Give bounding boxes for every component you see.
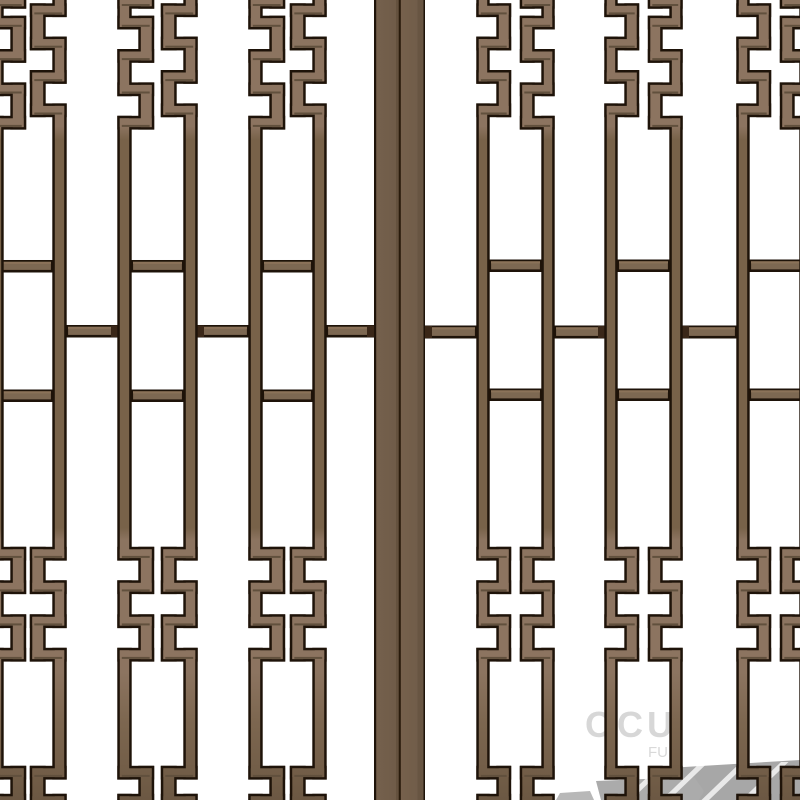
svg-text:FU: FU [648,744,668,761]
svg-text:OCU: OCU [585,704,677,745]
